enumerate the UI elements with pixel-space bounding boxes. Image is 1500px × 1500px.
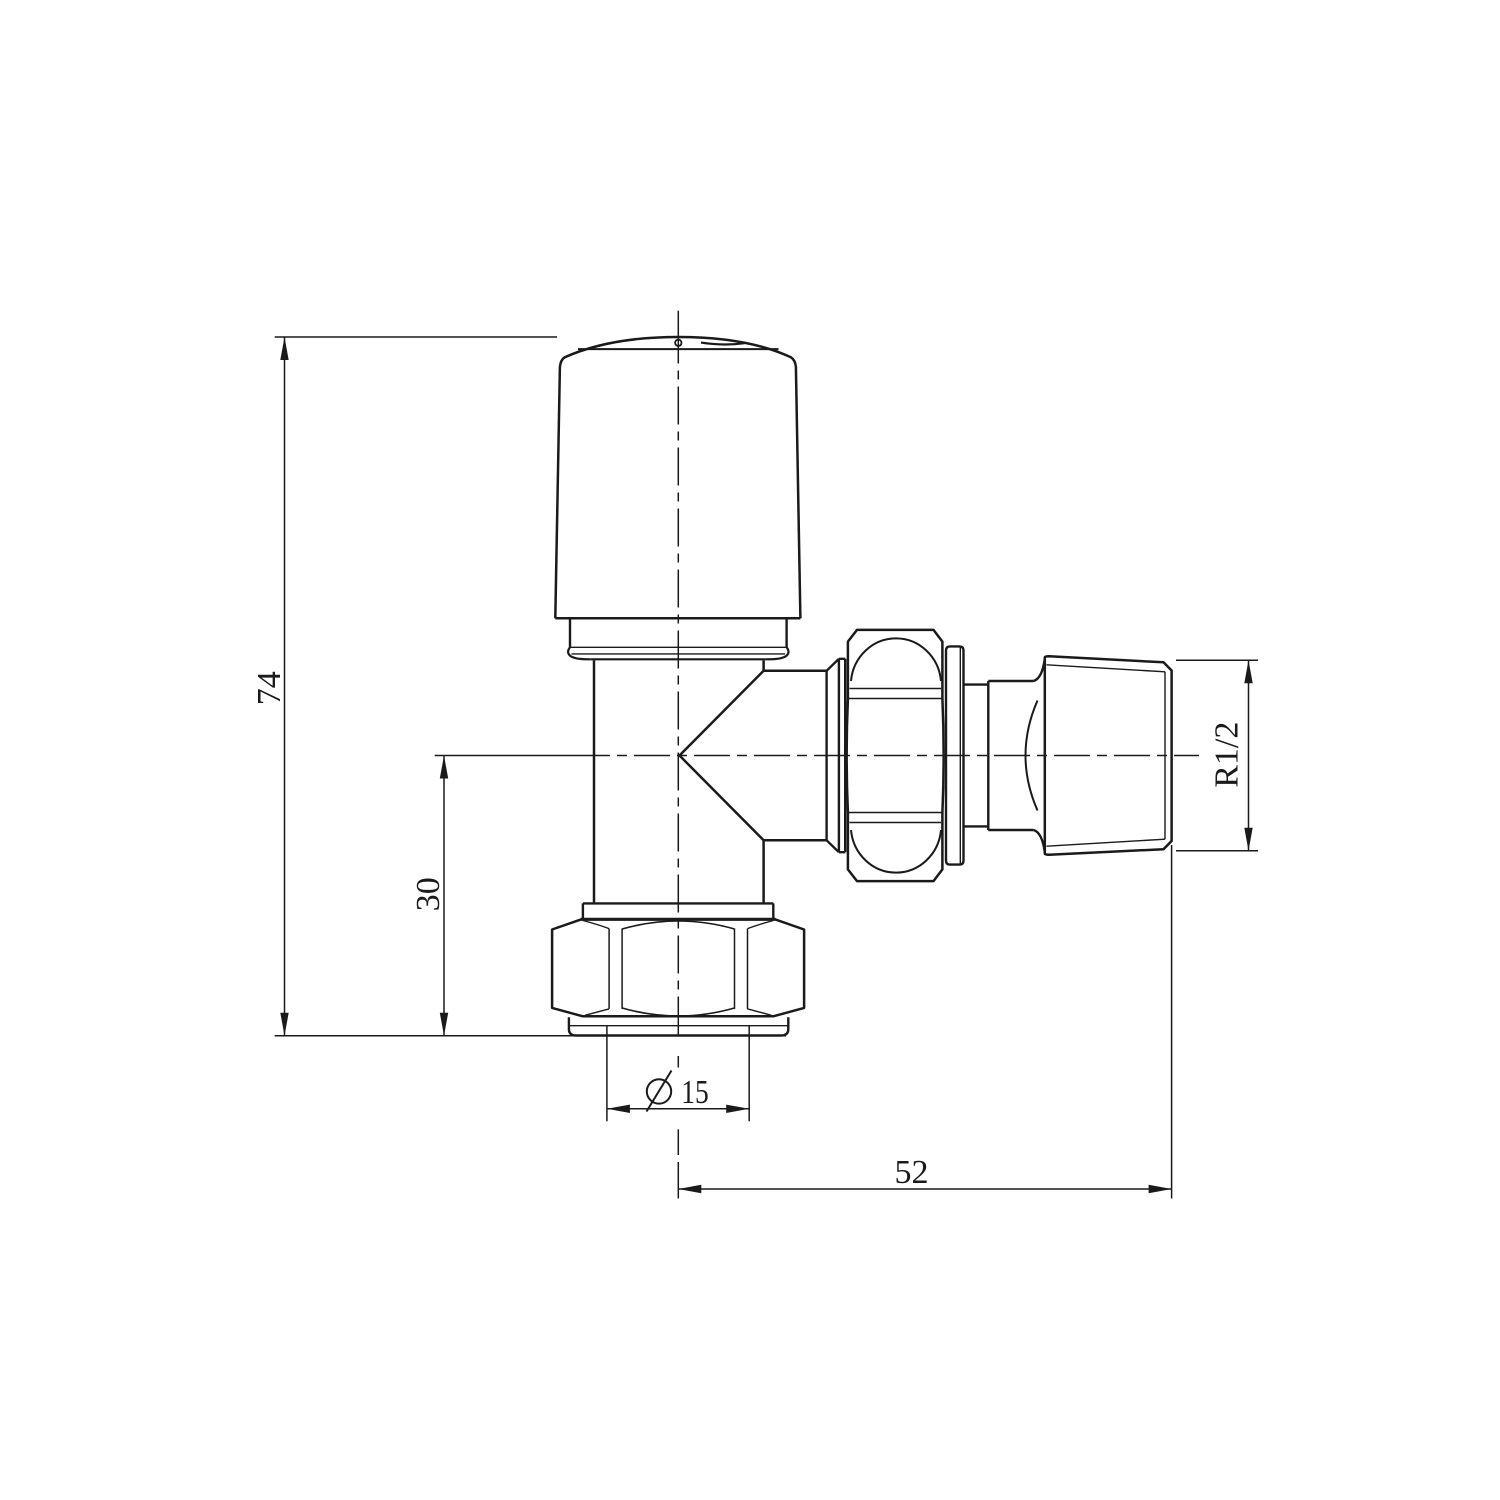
svg-text:15: 15 — [681, 1074, 709, 1111]
svg-text:74: 74 — [251, 671, 288, 705]
svg-text:52: 52 — [895, 1154, 929, 1191]
svg-text:30: 30 — [410, 877, 447, 911]
svg-text:R1/2: R1/2 — [1209, 722, 1246, 788]
